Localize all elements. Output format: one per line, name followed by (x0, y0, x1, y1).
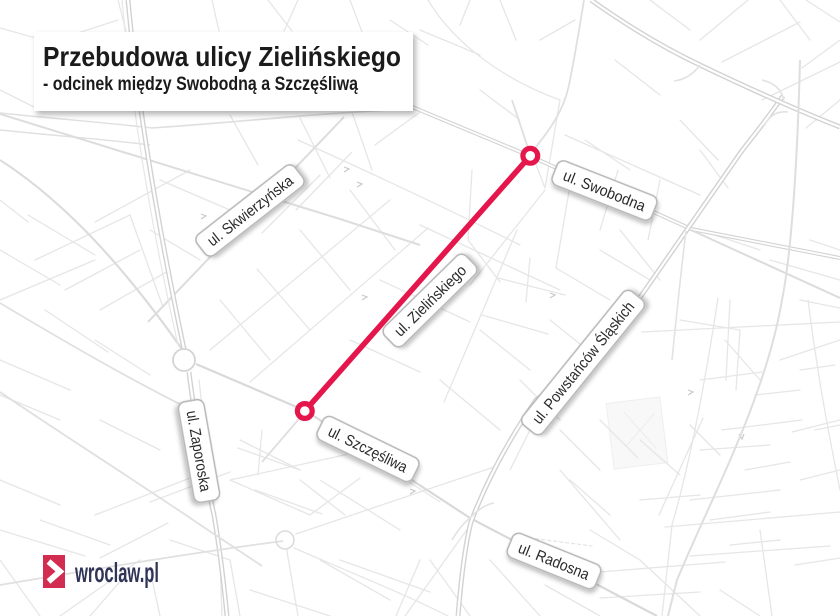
svg-text:- odcinek między Swobodną a Sz: - odcinek między Swobodną a Szczęśliwą (43, 74, 358, 95)
svg-text:wroclaw.pl: wroclaw.pl (74, 557, 159, 588)
svg-text:Przebudowa ulicy Zielińskiego: Przebudowa ulicy Zielińskiego (43, 41, 401, 72)
